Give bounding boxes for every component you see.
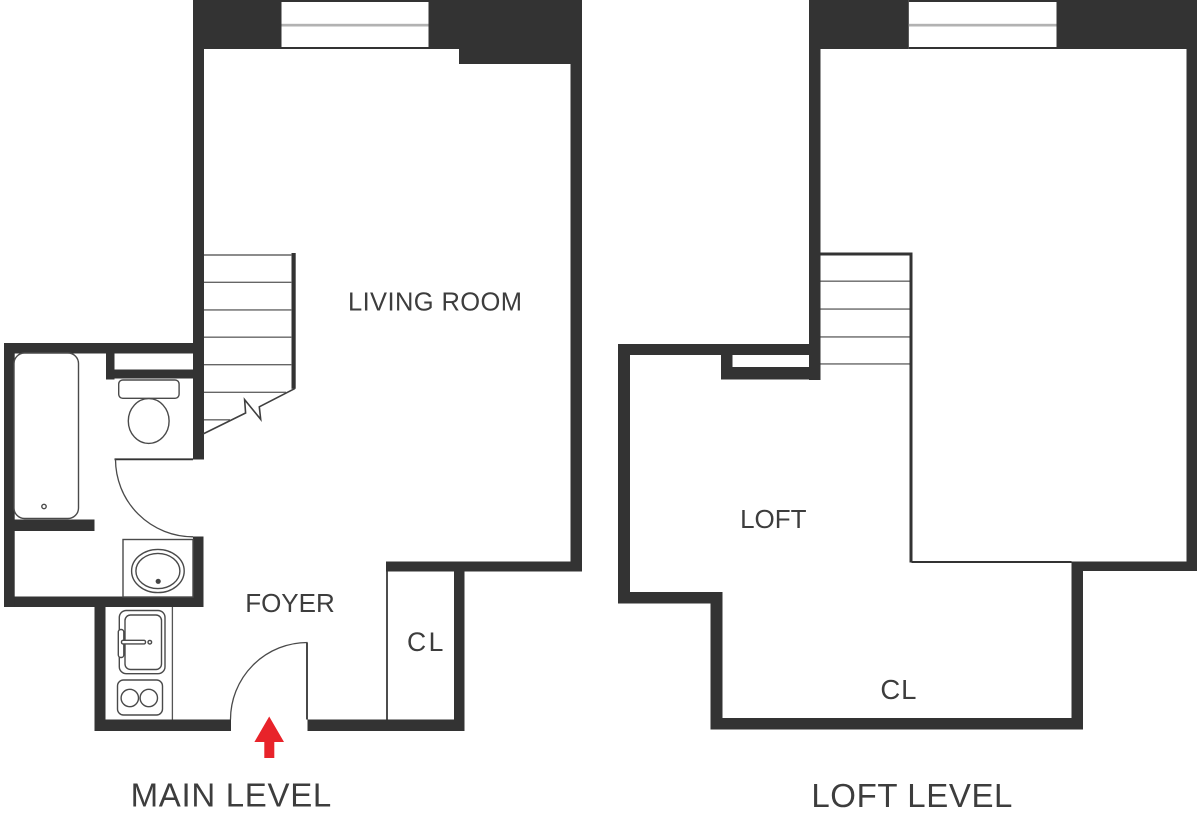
svg-text:MAIN LEVEL: MAIN LEVEL — [131, 777, 332, 814]
svg-text:LOFT: LOFT — [740, 504, 807, 534]
svg-text:LOFT LEVEL: LOFT LEVEL — [811, 777, 1013, 814]
svg-text:CL: CL — [407, 627, 446, 657]
svg-text:FOYER: FOYER — [245, 588, 335, 618]
svg-text:LIVING ROOM: LIVING ROOM — [348, 289, 522, 317]
svg-text:CL: CL — [880, 674, 917, 705]
